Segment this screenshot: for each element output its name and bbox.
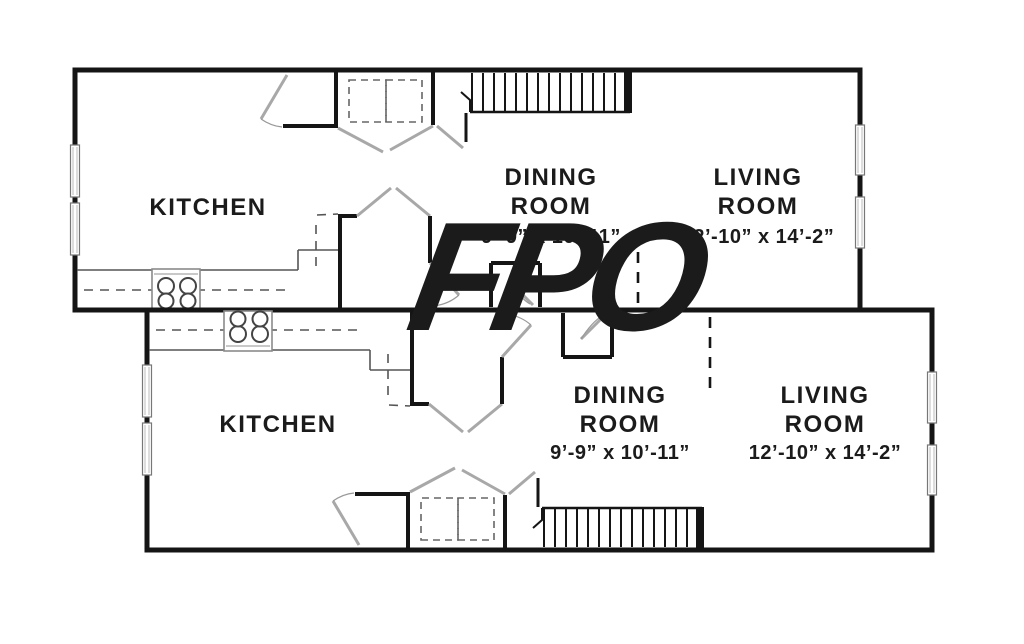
room-name-line2: ROOM <box>718 193 799 220</box>
floor-plan: KITCHEN DINING ROOM 9’-9” x 10’-11” LIVI… <box>0 0 1024 644</box>
room-name-line1: DINING <box>505 164 598 191</box>
room-name-line2: ROOM <box>580 411 661 438</box>
room-name-line2: ROOM <box>785 411 866 438</box>
room-dimensions: 9’-9” x 10’-11” <box>550 442 690 464</box>
lower-living-label: LIVING ROOM 12’-10” x 14’-2” <box>749 382 902 464</box>
lower-dining-label: DINING ROOM 9’-9” x 10’-11” <box>550 382 690 464</box>
lower-kitchen-label: KITCHEN <box>219 411 336 438</box>
room-name-line1: LIVING <box>780 382 869 409</box>
room-name-line1: LIVING <box>713 164 802 191</box>
room-dimensions: 12’-10” x 14’-2” <box>749 442 902 464</box>
room-dimensions: 12’-10” x 14’-2” <box>682 226 835 248</box>
floorplan-page: KITCHEN DINING ROOM 9’-9” x 10’-11” LIVI… <box>0 0 1024 644</box>
room-name: KITCHEN <box>219 411 336 438</box>
room-name-line1: DINING <box>574 382 667 409</box>
room-name: KITCHEN <box>149 194 266 221</box>
upper-kitchen-label: KITCHEN <box>149 194 266 221</box>
fpo-watermark: FPO <box>398 191 721 364</box>
fpo-watermark-text: FPO <box>398 191 721 364</box>
